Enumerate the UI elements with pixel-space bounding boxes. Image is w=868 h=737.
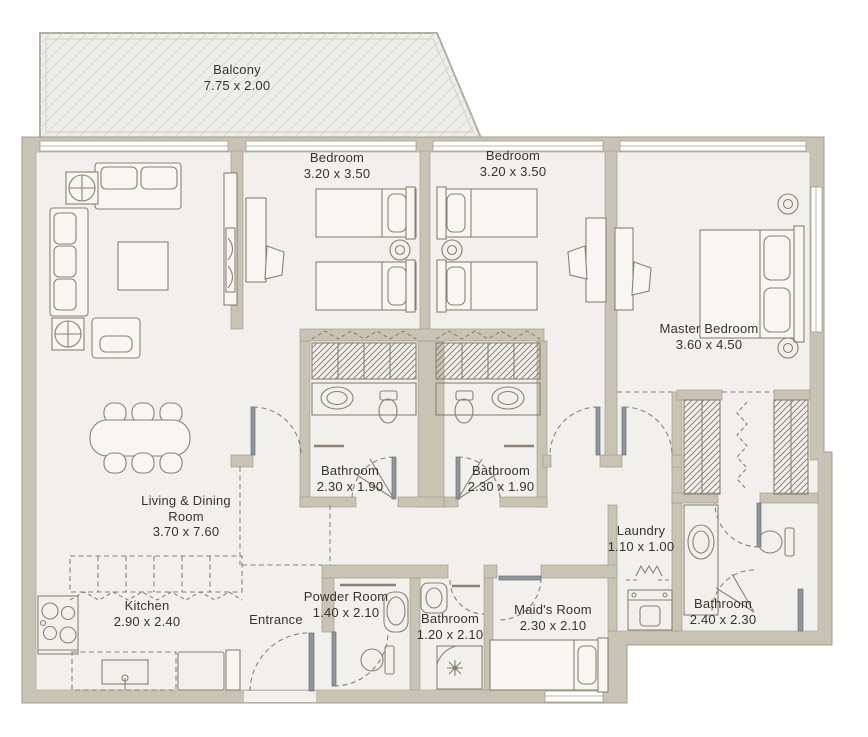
window [433, 141, 603, 151]
desk [586, 218, 606, 302]
floor-plan-drawing [0, 0, 868, 737]
wall [672, 392, 682, 503]
wall [484, 565, 497, 578]
wall [541, 565, 617, 578]
window [620, 141, 806, 151]
floor-plan: Balcony 7.75 x 2.00 Bedroom 3.20 x 3.50 … [0, 0, 868, 737]
dining-set [90, 403, 190, 473]
dining-chair [104, 453, 126, 473]
wall [420, 151, 430, 341]
balcony [40, 33, 481, 138]
coffee-table [118, 242, 168, 290]
window [545, 691, 603, 702]
wall [410, 578, 420, 690]
double-bed [700, 226, 804, 342]
entrance-opening [244, 691, 316, 702]
wall [500, 497, 547, 507]
window [246, 141, 416, 151]
dining-chair [132, 453, 154, 473]
armchair [92, 318, 140, 358]
twin-bed [437, 187, 537, 239]
wall [600, 455, 622, 467]
two-seat-sofa [95, 163, 181, 209]
wall [322, 565, 448, 578]
twin-bed [316, 187, 416, 239]
wall [543, 455, 551, 467]
desk-chair [632, 262, 651, 295]
desk [246, 198, 266, 282]
wall [300, 341, 310, 507]
desk-chair [568, 246, 587, 279]
three-seat-sofa [50, 208, 88, 316]
window [40, 141, 228, 151]
wall [672, 455, 682, 467]
wall [322, 578, 334, 632]
single-bed [490, 638, 608, 692]
door [798, 589, 803, 631]
desk-chair [265, 246, 284, 279]
dining-table [90, 420, 190, 456]
window [811, 187, 822, 332]
side-table-lamp [66, 172, 98, 204]
side-table-lamp [52, 318, 84, 350]
twin-bed [437, 260, 537, 312]
wall [672, 503, 682, 631]
wall [300, 329, 544, 341]
wall [231, 455, 253, 467]
dining-chair [160, 453, 182, 473]
wall [300, 497, 356, 507]
desk [615, 228, 633, 310]
wall [677, 390, 722, 400]
wall [398, 497, 444, 507]
shoe-cabinet [226, 650, 240, 690]
twin-bed [316, 260, 416, 312]
tv-unit [224, 173, 237, 305]
wall [774, 390, 810, 400]
